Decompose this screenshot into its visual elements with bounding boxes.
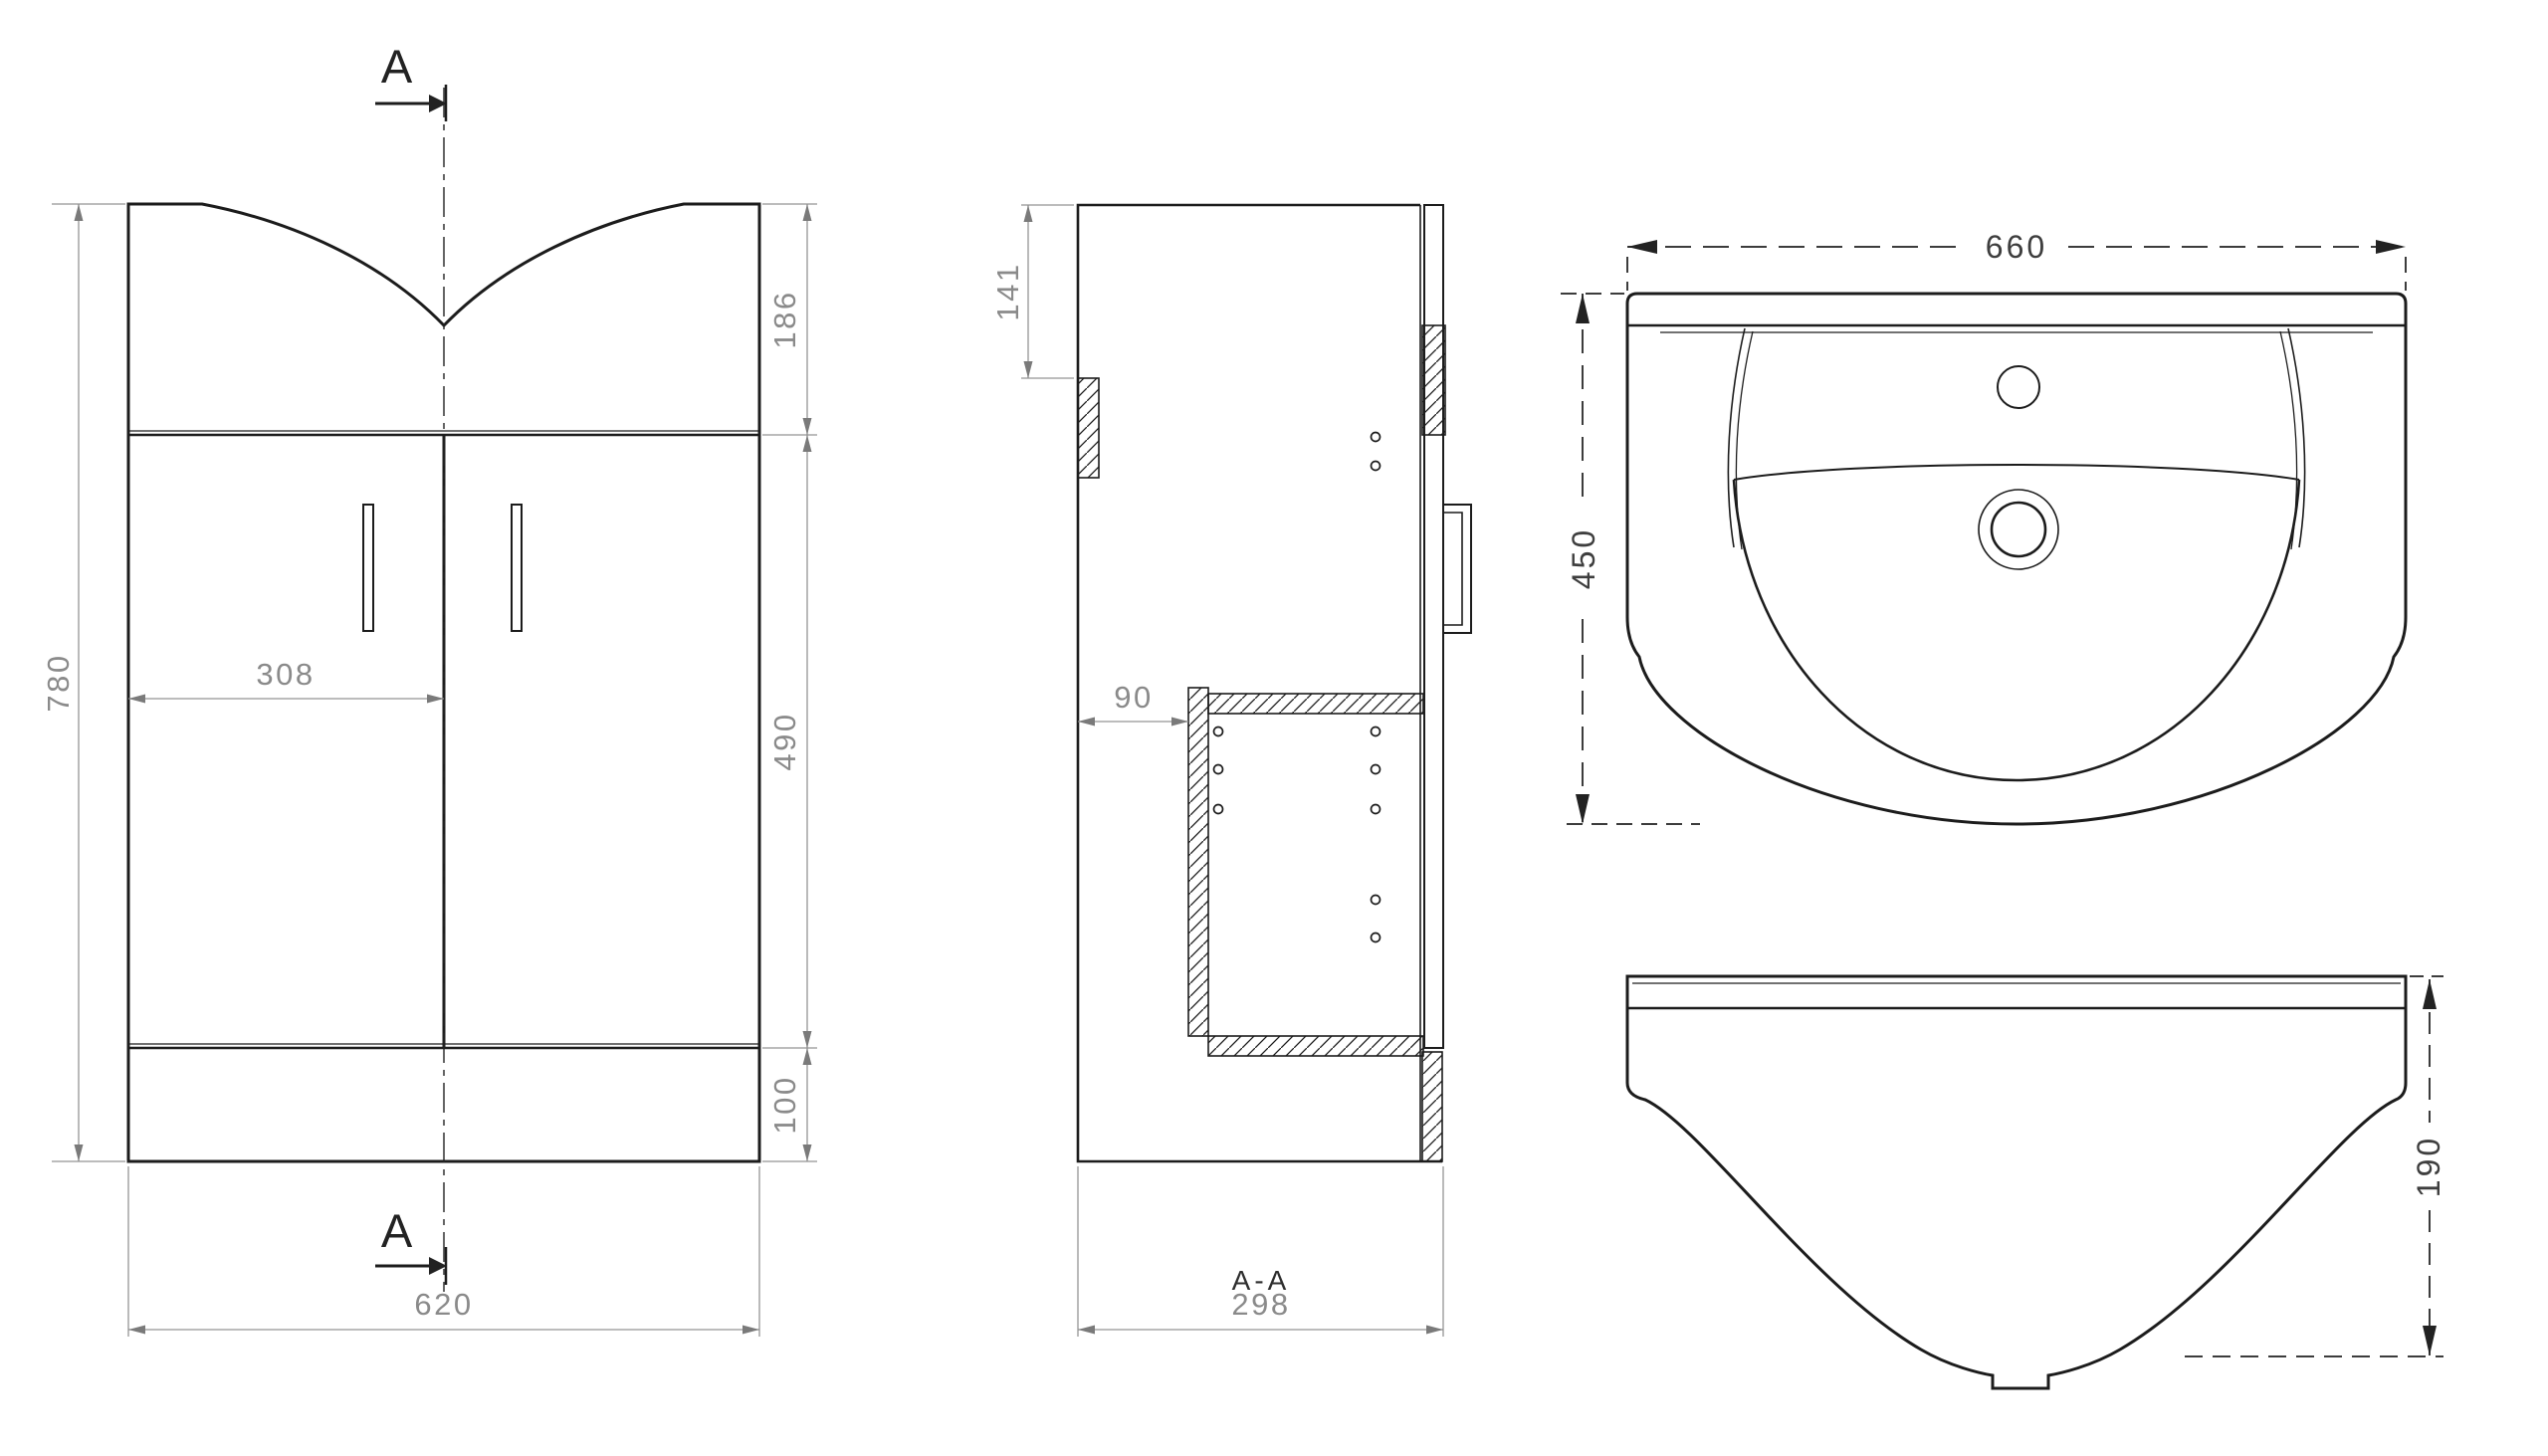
dim-label-620: 620 xyxy=(414,1287,473,1322)
left-door-handle xyxy=(363,505,373,631)
vanity-unit-technical-drawing: A A 780 308 xyxy=(0,0,2548,1456)
dim-right-chain: 186 490 100 xyxy=(762,204,817,1161)
dim-label-186: 186 xyxy=(767,290,802,348)
front-view: A A 780 308 xyxy=(41,40,817,1337)
dim-label-780: 780 xyxy=(41,653,76,712)
basin-bowl-front-edge xyxy=(1734,480,2299,780)
drawing-sheet: A A 780 308 xyxy=(0,0,2548,1456)
section-plinth-hatch xyxy=(1422,1052,1442,1161)
basin-bowl-back-edge xyxy=(1734,465,2299,480)
dim-label-141: 141 xyxy=(990,262,1025,320)
dim-label-308: 308 xyxy=(256,657,315,692)
dim-top-rail: 141 xyxy=(990,205,1074,378)
waste-hole-inner xyxy=(1992,503,2045,556)
dim-label-190: 190 xyxy=(2411,1136,2446,1197)
right-door-handle xyxy=(512,505,522,631)
tap-hole xyxy=(1998,366,2039,408)
dim-label-298: 298 xyxy=(1231,1287,1290,1322)
section-handle-inner xyxy=(1443,513,1462,625)
dim-section-depth: 298 xyxy=(1078,1166,1443,1337)
dim-label-90: 90 xyxy=(1114,680,1153,715)
section-marker-top-label: A xyxy=(381,40,413,93)
dim-basin-depth: 450 xyxy=(1561,294,1700,824)
dim-front-height: 780 xyxy=(41,204,125,1161)
section-worktop-hatch xyxy=(1422,325,1445,435)
dim-label-100: 100 xyxy=(767,1075,802,1134)
dim-label-450: 450 xyxy=(1566,527,1601,589)
dim-basin-height: 190 xyxy=(2185,976,2446,1356)
dim-label-490: 490 xyxy=(767,712,802,770)
dim-back-offset: 90 xyxy=(1078,680,1188,727)
dim-basin-width: 660 xyxy=(1627,229,2406,291)
section-back-panel-hatch xyxy=(1188,688,1208,1036)
section-shelf-hatch xyxy=(1208,694,1423,714)
basin-front-outline xyxy=(1627,976,2406,1388)
dim-label-660: 660 xyxy=(1986,229,2047,265)
section-floor-hatch xyxy=(1208,1036,1423,1056)
dim-door-width: 308 xyxy=(128,657,444,704)
section-marker-bottom-label: A xyxy=(381,1204,413,1257)
section-handle-outer xyxy=(1443,505,1471,633)
section-back-rail-hatch xyxy=(1078,378,1099,478)
section-fitting-holes xyxy=(1214,433,1380,942)
basin-plan-view: 660 450 xyxy=(1561,229,2406,824)
basin-front-view: 190 xyxy=(1627,976,2446,1388)
section-view: 141 90 A-A 298 xyxy=(990,205,1471,1337)
